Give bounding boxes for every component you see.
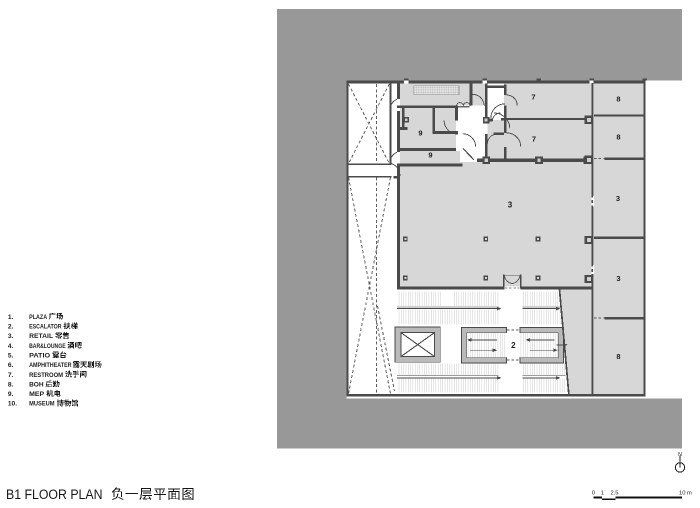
svg-text:MUSEUM: MUSEUM — [29, 401, 55, 408]
svg-text:MEP: MEP — [29, 391, 45, 398]
svg-text:3: 3 — [616, 274, 620, 283]
svg-text:7.: 7. — [8, 372, 14, 379]
svg-text:0: 0 — [592, 490, 595, 496]
svg-text:RESTROOM: RESTROOM — [29, 372, 63, 379]
svg-text:2.5: 2.5 — [610, 490, 618, 496]
svg-text:5.: 5. — [8, 353, 14, 360]
svg-text:BAR&LOUNGE: BAR&LOUNGE — [29, 343, 66, 350]
svg-text:3.: 3. — [8, 333, 14, 340]
svg-text:PATIO: PATIO — [29, 353, 50, 360]
svg-text:10 m: 10 m — [679, 490, 692, 496]
svg-text:2.: 2. — [8, 324, 14, 331]
svg-text:3: 3 — [508, 200, 513, 209]
svg-text:BOH: BOH — [29, 381, 44, 388]
svg-text:RETAIL: RETAIL — [29, 333, 53, 340]
svg-text:AMPHITHEATER: AMPHITHEATER — [29, 362, 72, 369]
svg-text:PLAZA: PLAZA — [29, 314, 47, 321]
svg-text:9.: 9. — [8, 391, 14, 398]
svg-text:9: 9 — [418, 129, 422, 138]
svg-text:6.: 6. — [8, 362, 14, 369]
svg-text:2: 2 — [511, 341, 516, 350]
svg-text:10.: 10. — [8, 401, 17, 408]
svg-text:9: 9 — [428, 151, 432, 160]
svg-text:1: 1 — [601, 490, 604, 496]
svg-text:1.: 1. — [8, 314, 14, 321]
svg-text:8: 8 — [616, 133, 620, 142]
svg-text:8: 8 — [616, 352, 620, 361]
svg-text:ESCALATOR: ESCALATOR — [29, 324, 62, 331]
svg-text:3: 3 — [616, 194, 620, 203]
svg-text:7: 7 — [531, 93, 535, 102]
svg-text:4.: 4. — [8, 343, 14, 350]
svg-text:7: 7 — [532, 135, 536, 144]
svg-text:8: 8 — [616, 95, 620, 104]
svg-text:8.: 8. — [8, 381, 14, 388]
svg-text:N: N — [678, 452, 682, 458]
svg-text:B1 FLOOR PLAN: B1 FLOOR PLAN — [6, 487, 103, 502]
